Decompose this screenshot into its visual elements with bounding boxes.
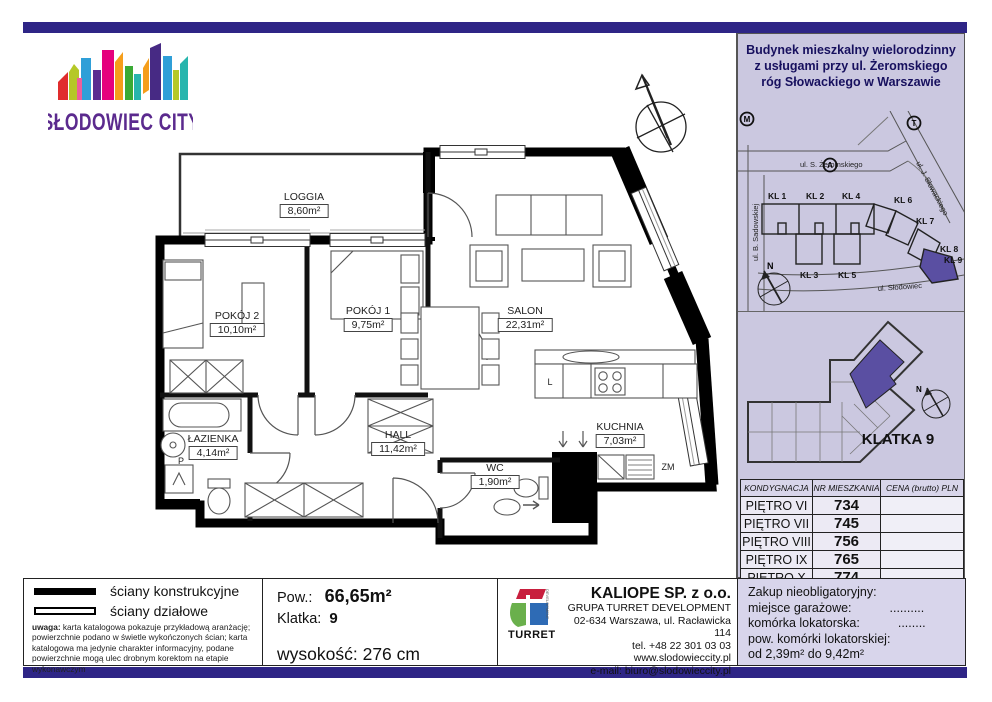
note-bold: uwaga:: [32, 622, 61, 632]
room-name: POKÓJ 1: [344, 305, 393, 317]
svg-text:KL 5: KL 5: [838, 270, 857, 280]
svg-text:ul. Słodowiec: ul. Słodowiec: [878, 281, 923, 293]
company-box: TURRET DEVELOPMENT KALIOPE SP. z o.o. GR…: [497, 578, 738, 666]
price-cell: [881, 515, 964, 533]
options-title: Zakup nieobligatoryjny:: [748, 585, 965, 601]
room-area: 4,14m²: [189, 446, 238, 460]
storage-label: komórka lokatorska:: [748, 616, 860, 632]
company-address: 02-634 Warszawa, ul. Racławicka 114: [562, 615, 731, 640]
price-cell: [881, 533, 964, 551]
apartment-number-cell: 765: [813, 551, 881, 569]
room-label-pokoj1: POKÓJ 1 9,75m²: [344, 305, 393, 332]
legend-note: uwaga: karta katalogowa pokazuje przykła…: [32, 622, 256, 674]
area-label: Pow.:: [277, 590, 312, 606]
svg-text:KL 8: KL 8: [940, 244, 959, 254]
staircase-label: Klatka:: [277, 611, 321, 627]
floor-overview-plan: KLATKA 9 N: [738, 311, 964, 479]
room-name: KUCHNIA: [596, 421, 645, 433]
room-area: 8,60m²: [280, 204, 329, 218]
site-map: KL 1 KL 2 KL 4 KL 3 KL 5 KL 6 KL 7 KL 8 …: [738, 111, 964, 311]
map-compass-icon: N: [758, 261, 790, 305]
staircase-value: 9: [329, 610, 337, 627]
fridge-mark: L: [546, 377, 553, 387]
room-name: LOGGIA: [280, 191, 329, 203]
svg-text:KL 7: KL 7: [916, 216, 935, 226]
svg-text:ul. J. Słowackiego: ul. J. Słowackiego: [914, 160, 950, 217]
garage-value: ..........: [890, 601, 925, 617]
floorplan-panel: SŁODOWIEC CITY: [23, 33, 737, 578]
area-spec: Pow.: 66,65m²: [277, 586, 497, 607]
room-label-loggia: LOGGIA 8,60m²: [280, 191, 329, 218]
room-area: 11,42m²: [371, 442, 425, 456]
dishwasher-mark: ZM: [661, 462, 676, 472]
table-header-row: KONDYGNACJA NR MIESZKANIA CENA (brutto) …: [741, 480, 964, 497]
col-header-kondygnacja: KONDYGNACJA: [741, 480, 813, 497]
metro-marker: M: [744, 115, 751, 124]
room-name: SALON: [498, 305, 553, 317]
room-name: ŁAZIENKA: [188, 433, 239, 445]
room-label-hall: HALL 11,42m²: [371, 429, 425, 456]
company-group: GRUPA TURRET DEVELOPMENT: [562, 602, 731, 615]
room-name: WC: [471, 462, 520, 474]
room-name: POKÓJ 2: [210, 310, 265, 322]
company-email: e-mail: biuro@slodowieccity.pl: [562, 665, 731, 678]
catalog-card-page: { "brand": {"name": "SŁODOWIEC CITY"}, "…: [0, 0, 992, 702]
room-label-kuchnia: KUCHNIA 7,03m²: [596, 421, 645, 448]
col-header-nr: NR MIESZKANIA: [813, 480, 881, 497]
apartment-number-cell: 745: [813, 515, 881, 533]
top-accent-bar: [23, 22, 967, 33]
specs-box: Pow.: 66,65m² Klatka: 9 wysokość: 276 cm: [262, 578, 498, 666]
storage-option: komórka lokatorska: ........: [748, 616, 965, 632]
svg-text:KL 9: KL 9: [944, 255, 963, 265]
transit-markers: M T A: [741, 113, 921, 172]
company-name: KALIOPE SP. z o.o.: [562, 585, 731, 602]
table-row: PIĘTRO IX 765: [741, 551, 964, 569]
area-value: 66,65m²: [325, 586, 392, 606]
svg-text:KL 6: KL 6: [894, 195, 913, 205]
company-phone: tel. +48 22 301 03 03: [562, 640, 731, 653]
purchase-options-box: Zakup nieobligatoryjny: miejsce garażowe…: [737, 578, 966, 666]
storage-area-label: pow. komórki lokatorskiej:: [748, 632, 965, 648]
legend-label: ściany działowe: [110, 603, 208, 619]
height-spec: wysokość: 276 cm: [277, 644, 497, 665]
company-details: KALIOPE SP. z o.o. GRUPA TURRET DEVELOPM…: [562, 585, 731, 665]
turret-logo: TURRET DEVELOPMENT: [506, 585, 562, 665]
room-area: 7,03m²: [596, 434, 645, 448]
floor-cell: PIĘTRO VIII: [741, 533, 813, 551]
svg-text:N: N: [767, 261, 774, 271]
a-marker: A: [827, 161, 833, 170]
tram-marker: T: [912, 119, 917, 128]
legend-partition: ściany działowe: [34, 603, 256, 619]
table-row: PIĘTRO VI 734: [741, 497, 964, 515]
partition-wall-swatch: [34, 607, 96, 615]
garage-option: miejsce garażowe: ..........: [748, 601, 965, 617]
structural-wall-swatch: [34, 588, 96, 595]
turret-logo-vertical-text: DEVELOPMENT: [545, 589, 550, 619]
height-label: wysokość:: [277, 644, 358, 664]
svg-text:KL 2: KL 2: [806, 191, 825, 201]
building-title-line2: z usługami przy ul. Żeromskiego: [738, 58, 964, 74]
klatka-label: KLATKA 9: [862, 431, 935, 448]
washer-mark: P: [177, 456, 185, 466]
garage-label: miejsce garażowe:: [748, 601, 852, 617]
room-label-wc: WC 1,90m²: [471, 462, 520, 489]
svg-text:KL 4: KL 4: [842, 191, 861, 201]
room-name: HALL: [371, 429, 425, 441]
floor-cell: PIĘTRO VII: [741, 515, 813, 533]
company-website: www.slodowieccity.pl: [562, 652, 731, 665]
storage-value: ........: [898, 616, 926, 632]
turret-logo-text: TURRET: [508, 629, 556, 641]
storage-area-range: od 2,39m² do 9,42m²: [748, 647, 965, 663]
room-area: 10,10m²: [210, 323, 265, 337]
sidebar: Budynek mieszkalny wielorodzinny z usług…: [737, 33, 965, 578]
room-area: 1,90m²: [471, 475, 520, 489]
room-area: 9,75m²: [344, 318, 393, 332]
price-cell: [881, 497, 964, 515]
floor-cell: PIĘTRO VI: [741, 497, 813, 515]
floor-cell: PIĘTRO IX: [741, 551, 813, 569]
legend-structural: ściany konstrukcyjne: [34, 583, 256, 599]
apartment-table: KONDYGNACJA NR MIESZKANIA CENA (brutto) …: [740, 479, 964, 587]
mini-compass-icon: N: [916, 385, 950, 418]
legend-label: ściany konstrukcyjne: [110, 583, 239, 599]
apartment-number-cell: 734: [813, 497, 881, 515]
height-value: 276 cm: [363, 644, 420, 664]
building-title: Budynek mieszkalny wielorodzinny z usług…: [738, 42, 964, 90]
col-header-cena: CENA (brutto) PLN: [881, 480, 964, 497]
highlighted-unit: [850, 340, 904, 408]
legend-box: ściany konstrukcyjne ściany działowe uwa…: [23, 578, 263, 666]
svg-text:ul. B. Sadowskiej: ul. B. Sadowskiej: [751, 204, 760, 261]
table-row: PIĘTRO VII 745: [741, 515, 964, 533]
room-label-lazienka: ŁAZIENKA 4,14m²: [188, 433, 239, 460]
building-title-line1: Budynek mieszkalny wielorodzinny: [738, 42, 964, 58]
svg-text:KL 1: KL 1: [768, 191, 787, 201]
note-text: karta katalogowa pokazuje przykładową ar…: [32, 622, 250, 674]
svg-text:N: N: [916, 385, 922, 394]
staircase-spec: Klatka: 9: [277, 610, 497, 627]
svg-text:KL 3: KL 3: [800, 270, 819, 280]
room-label-salon: SALON 22,31m²: [498, 305, 553, 332]
building-title-line3: róg Słowackiego w Warszawie: [738, 74, 964, 90]
price-cell: [881, 551, 964, 569]
apartment-number-cell: 756: [813, 533, 881, 551]
room-area: 22,31m²: [498, 318, 553, 332]
room-label-pokoj2: POKÓJ 2 10,10m²: [210, 310, 265, 337]
table-row: PIĘTRO VIII 756: [741, 533, 964, 551]
